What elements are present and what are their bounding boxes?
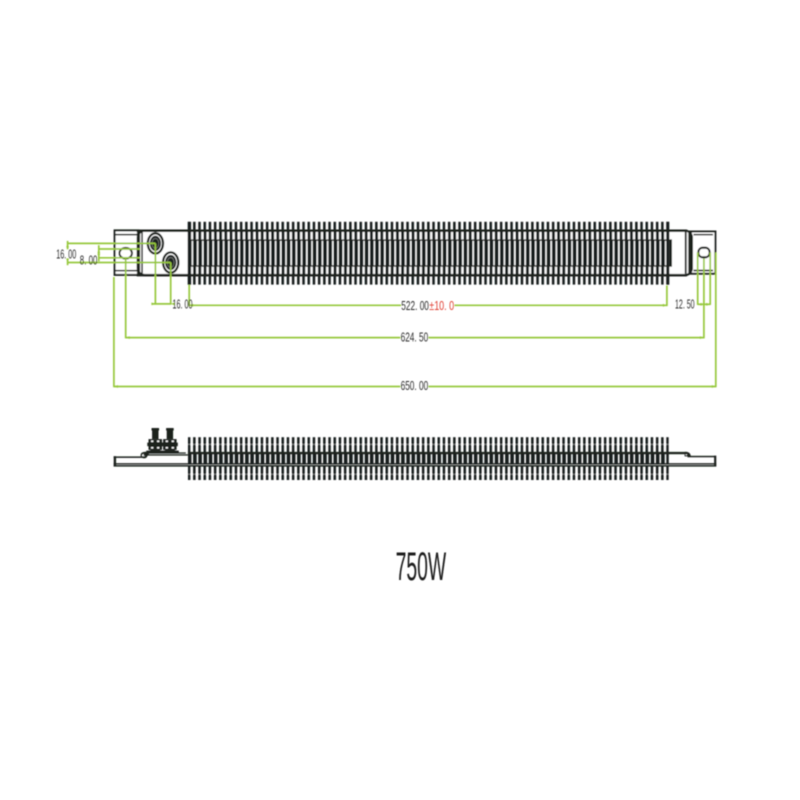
svg-text:12. 50: 12. 50 [675,296,695,311]
svg-text:650. 00: 650. 00 [401,378,429,393]
svg-text:16. 00: 16. 00 [173,297,193,312]
svg-text:624. 50: 624. 50 [401,330,429,345]
svg-text:750W: 750W [396,545,447,589]
svg-text:±10. 0: ±10. 0 [429,298,454,313]
svg-text:16. 00: 16. 00 [56,246,76,261]
svg-text:522. 00: 522. 00 [401,298,429,313]
svg-text:8. 00: 8. 00 [80,253,98,268]
